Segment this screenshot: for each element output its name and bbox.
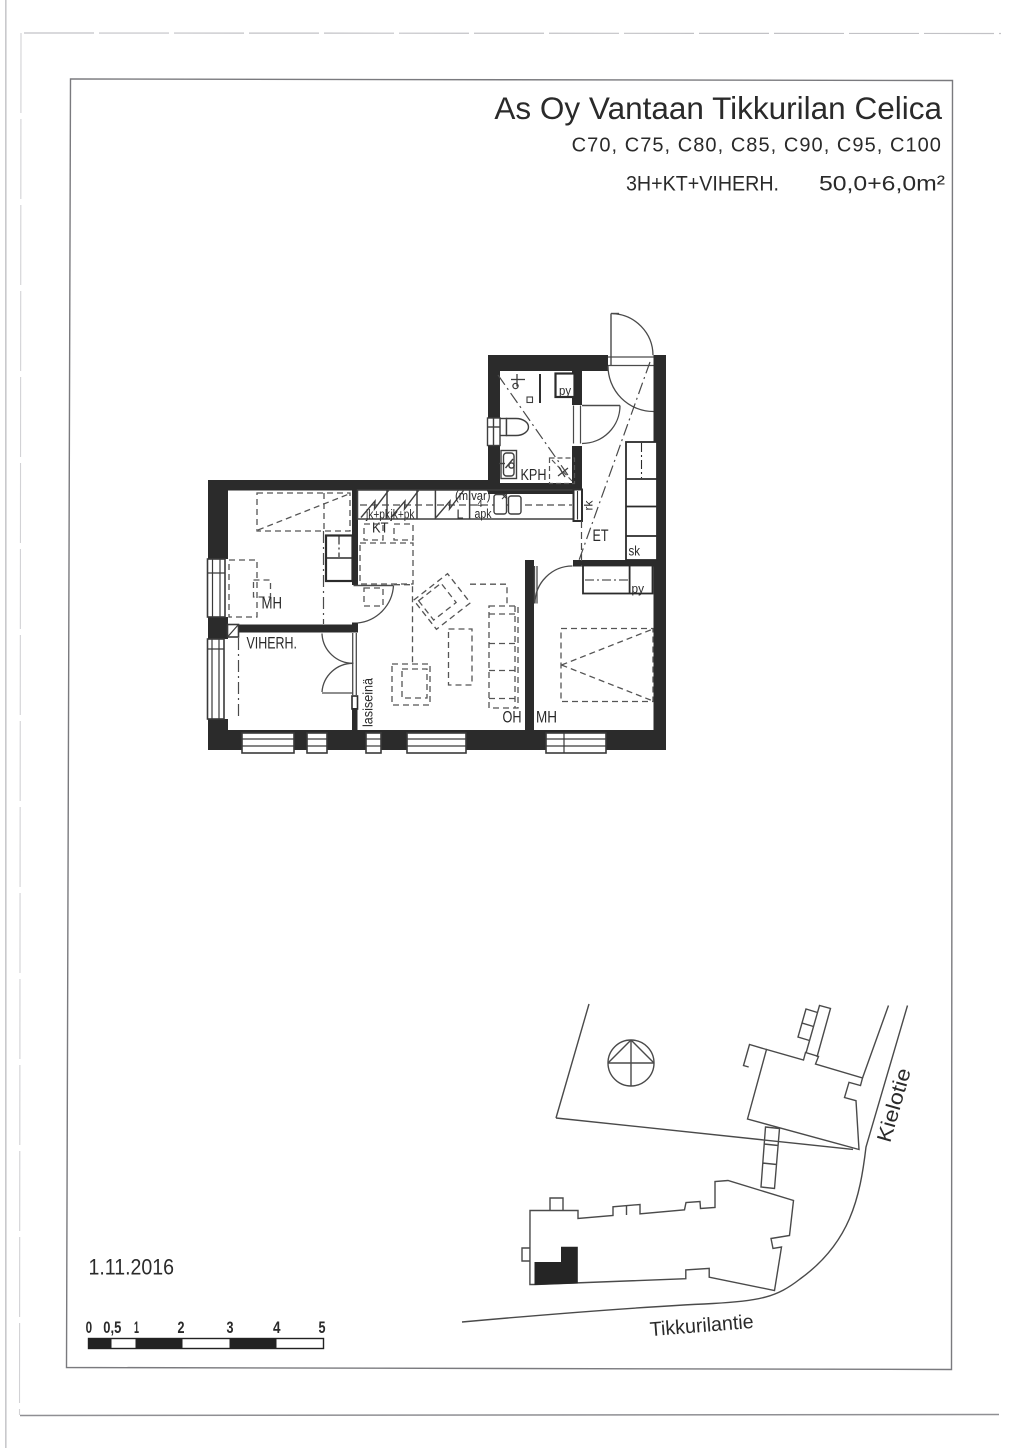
svg-text:4: 4 [273,1319,281,1337]
svg-text:3: 3 [227,1319,234,1337]
svg-text:2: 2 [178,1319,185,1337]
svg-text:C70, C75, C80, C85, C90, C95,: C70, C75, C80, C85, C90, C95, C100 [572,135,942,157]
svg-text:1.11.2016: 1.11.2016 [89,1255,175,1280]
svg-text:50,0+6,0m²: 50,0+6,0m² [819,173,945,196]
svg-text:ET: ET [593,526,609,545]
svg-text:py: py [632,581,645,596]
svg-text:py: py [559,383,571,398]
svg-text:MH: MH [536,709,557,727]
svg-text:1: 1 [134,1319,139,1337]
svg-text:jk+pk: jk+pk [390,508,415,522]
svg-text:5: 5 [319,1319,326,1337]
svg-text:0: 0 [86,1319,93,1337]
svg-text:(m.var): (m.var) [455,489,491,503]
svg-text:lasiseinä: lasiseinä [361,678,376,727]
svg-text:As Oy Vantaan Tikkurilan Celic: As Oy Vantaan Tikkurilan Celica [494,90,942,126]
svg-text:L: L [457,508,464,522]
svg-text:VIHERH.: VIHERH. [247,635,298,653]
svg-text:rk: rk [582,500,596,511]
svg-text:4: 4 [477,499,483,510]
svg-text:sk: sk [629,544,641,559]
svg-text:MH: MH [262,595,283,613]
svg-text:OH: OH [503,709,522,727]
svg-text:3H+KT+VIHERH.: 3H+KT+VIHERH. [626,173,779,196]
svg-text:KT: KT [372,520,389,537]
svg-text:KPH: KPH [521,467,547,484]
svg-text:0,5: 0,5 [103,1319,121,1337]
